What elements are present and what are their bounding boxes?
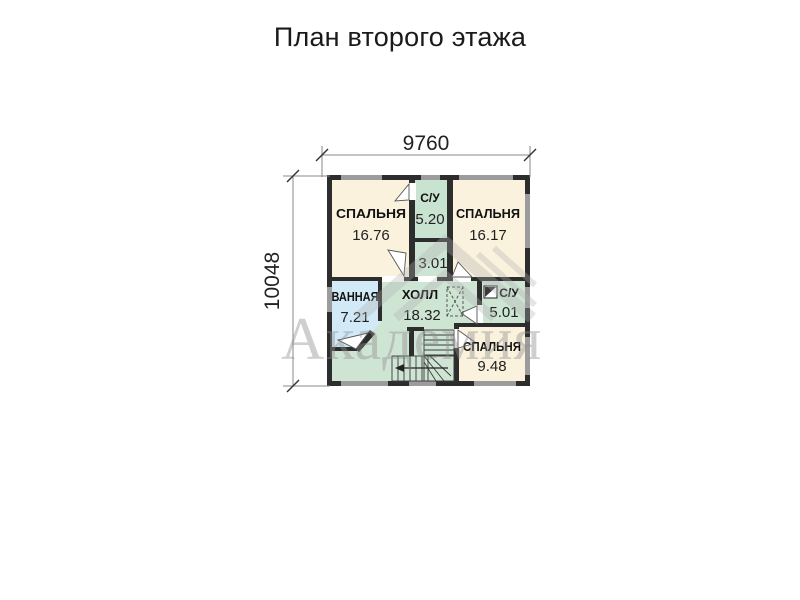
window <box>474 381 516 386</box>
floor-plan: СПАЛЬНЯ 16.76 С/У 5.20 СПАЛЬНЯ 16.17 3.0… <box>0 0 800 600</box>
room-area-bedroom-2: 16.17 <box>469 227 507 244</box>
room-label-bedroom-2: СПАЛЬНЯ <box>456 206 520 221</box>
dimension-height-label: 10048 <box>261 252 284 310</box>
wall <box>447 180 453 281</box>
window <box>525 194 530 248</box>
room-label-bedroom-1: СПАЛЬНЯ <box>336 206 406 221</box>
watermark-text: Академия <box>281 306 542 372</box>
room-area-wc-top: 5.20 <box>415 211 444 228</box>
window <box>421 175 440 180</box>
window <box>409 381 436 386</box>
dimension-top: 9760 <box>316 132 536 177</box>
window <box>341 175 382 180</box>
room-label-wc-top: С/У <box>420 191 440 205</box>
page: План второго этажа <box>0 0 800 600</box>
dimension-width-label: 9760 <box>403 132 450 155</box>
window <box>341 381 388 386</box>
room-area-bedroom-1: 16.76 <box>352 227 390 244</box>
window <box>459 175 513 180</box>
